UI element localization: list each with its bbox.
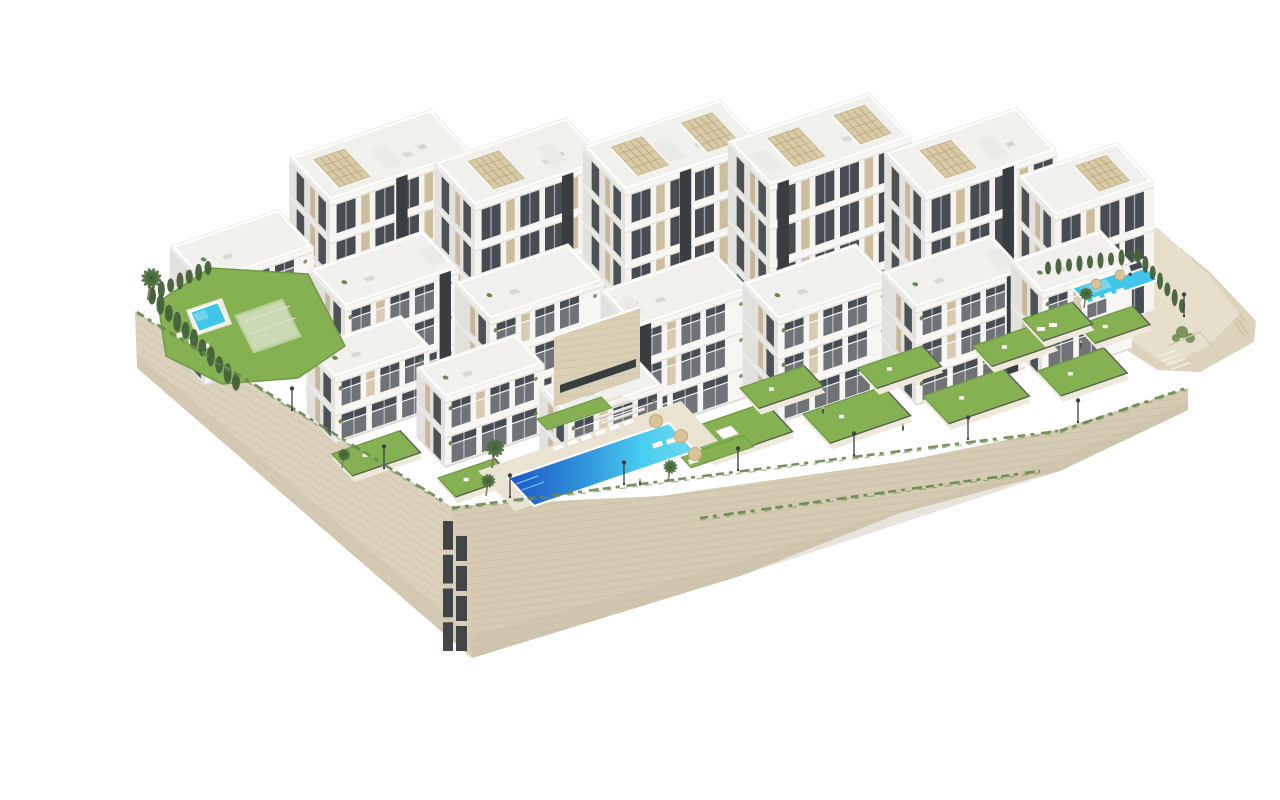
- cypress: [1066, 259, 1072, 272]
- lamp-head: [290, 386, 294, 390]
- parasol: [650, 415, 663, 428]
- architectural-render: [40, 16, 1280, 784]
- lamp-head: [508, 473, 512, 477]
- cypress: [1087, 256, 1093, 269]
- cypress: [1164, 282, 1170, 296]
- cypress: [186, 270, 193, 284]
- parasol: [1091, 279, 1101, 289]
- cypress: [205, 261, 212, 275]
- render-canvas: [40, 16, 1280, 784]
- cypress: [1056, 259, 1062, 275]
- cypress: [1150, 266, 1156, 280]
- lamp-head: [382, 444, 386, 448]
- cypress: [177, 273, 184, 290]
- cypress: [1119, 250, 1125, 266]
- cypress: [165, 305, 173, 322]
- cypress: [158, 281, 165, 298]
- cypress: [1157, 273, 1163, 290]
- lamp-head: [966, 415, 970, 419]
- lamp-head: [1182, 292, 1186, 296]
- lamp-head: [1076, 398, 1080, 402]
- lamp-head: [736, 446, 740, 450]
- parasol: [689, 448, 702, 461]
- person: [639, 479, 642, 482]
- cypress: [1098, 253, 1104, 269]
- person: [902, 424, 905, 427]
- cypress: [1142, 256, 1148, 273]
- cypress: [1108, 253, 1114, 266]
- cypress: [1129, 250, 1135, 263]
- lamp-head: [852, 431, 856, 435]
- cypress: [182, 322, 190, 339]
- person: [822, 407, 825, 410]
- person: [1080, 341, 1083, 344]
- cypress: [173, 312, 181, 332]
- cypress: [1077, 256, 1083, 272]
- cypress: [1172, 289, 1178, 306]
- cypress: [1045, 262, 1051, 275]
- cypress: [195, 264, 202, 281]
- lamp-head: [622, 460, 626, 464]
- parasol: [675, 430, 688, 443]
- cypress: [167, 278, 174, 292]
- cypress: [1135, 249, 1141, 263]
